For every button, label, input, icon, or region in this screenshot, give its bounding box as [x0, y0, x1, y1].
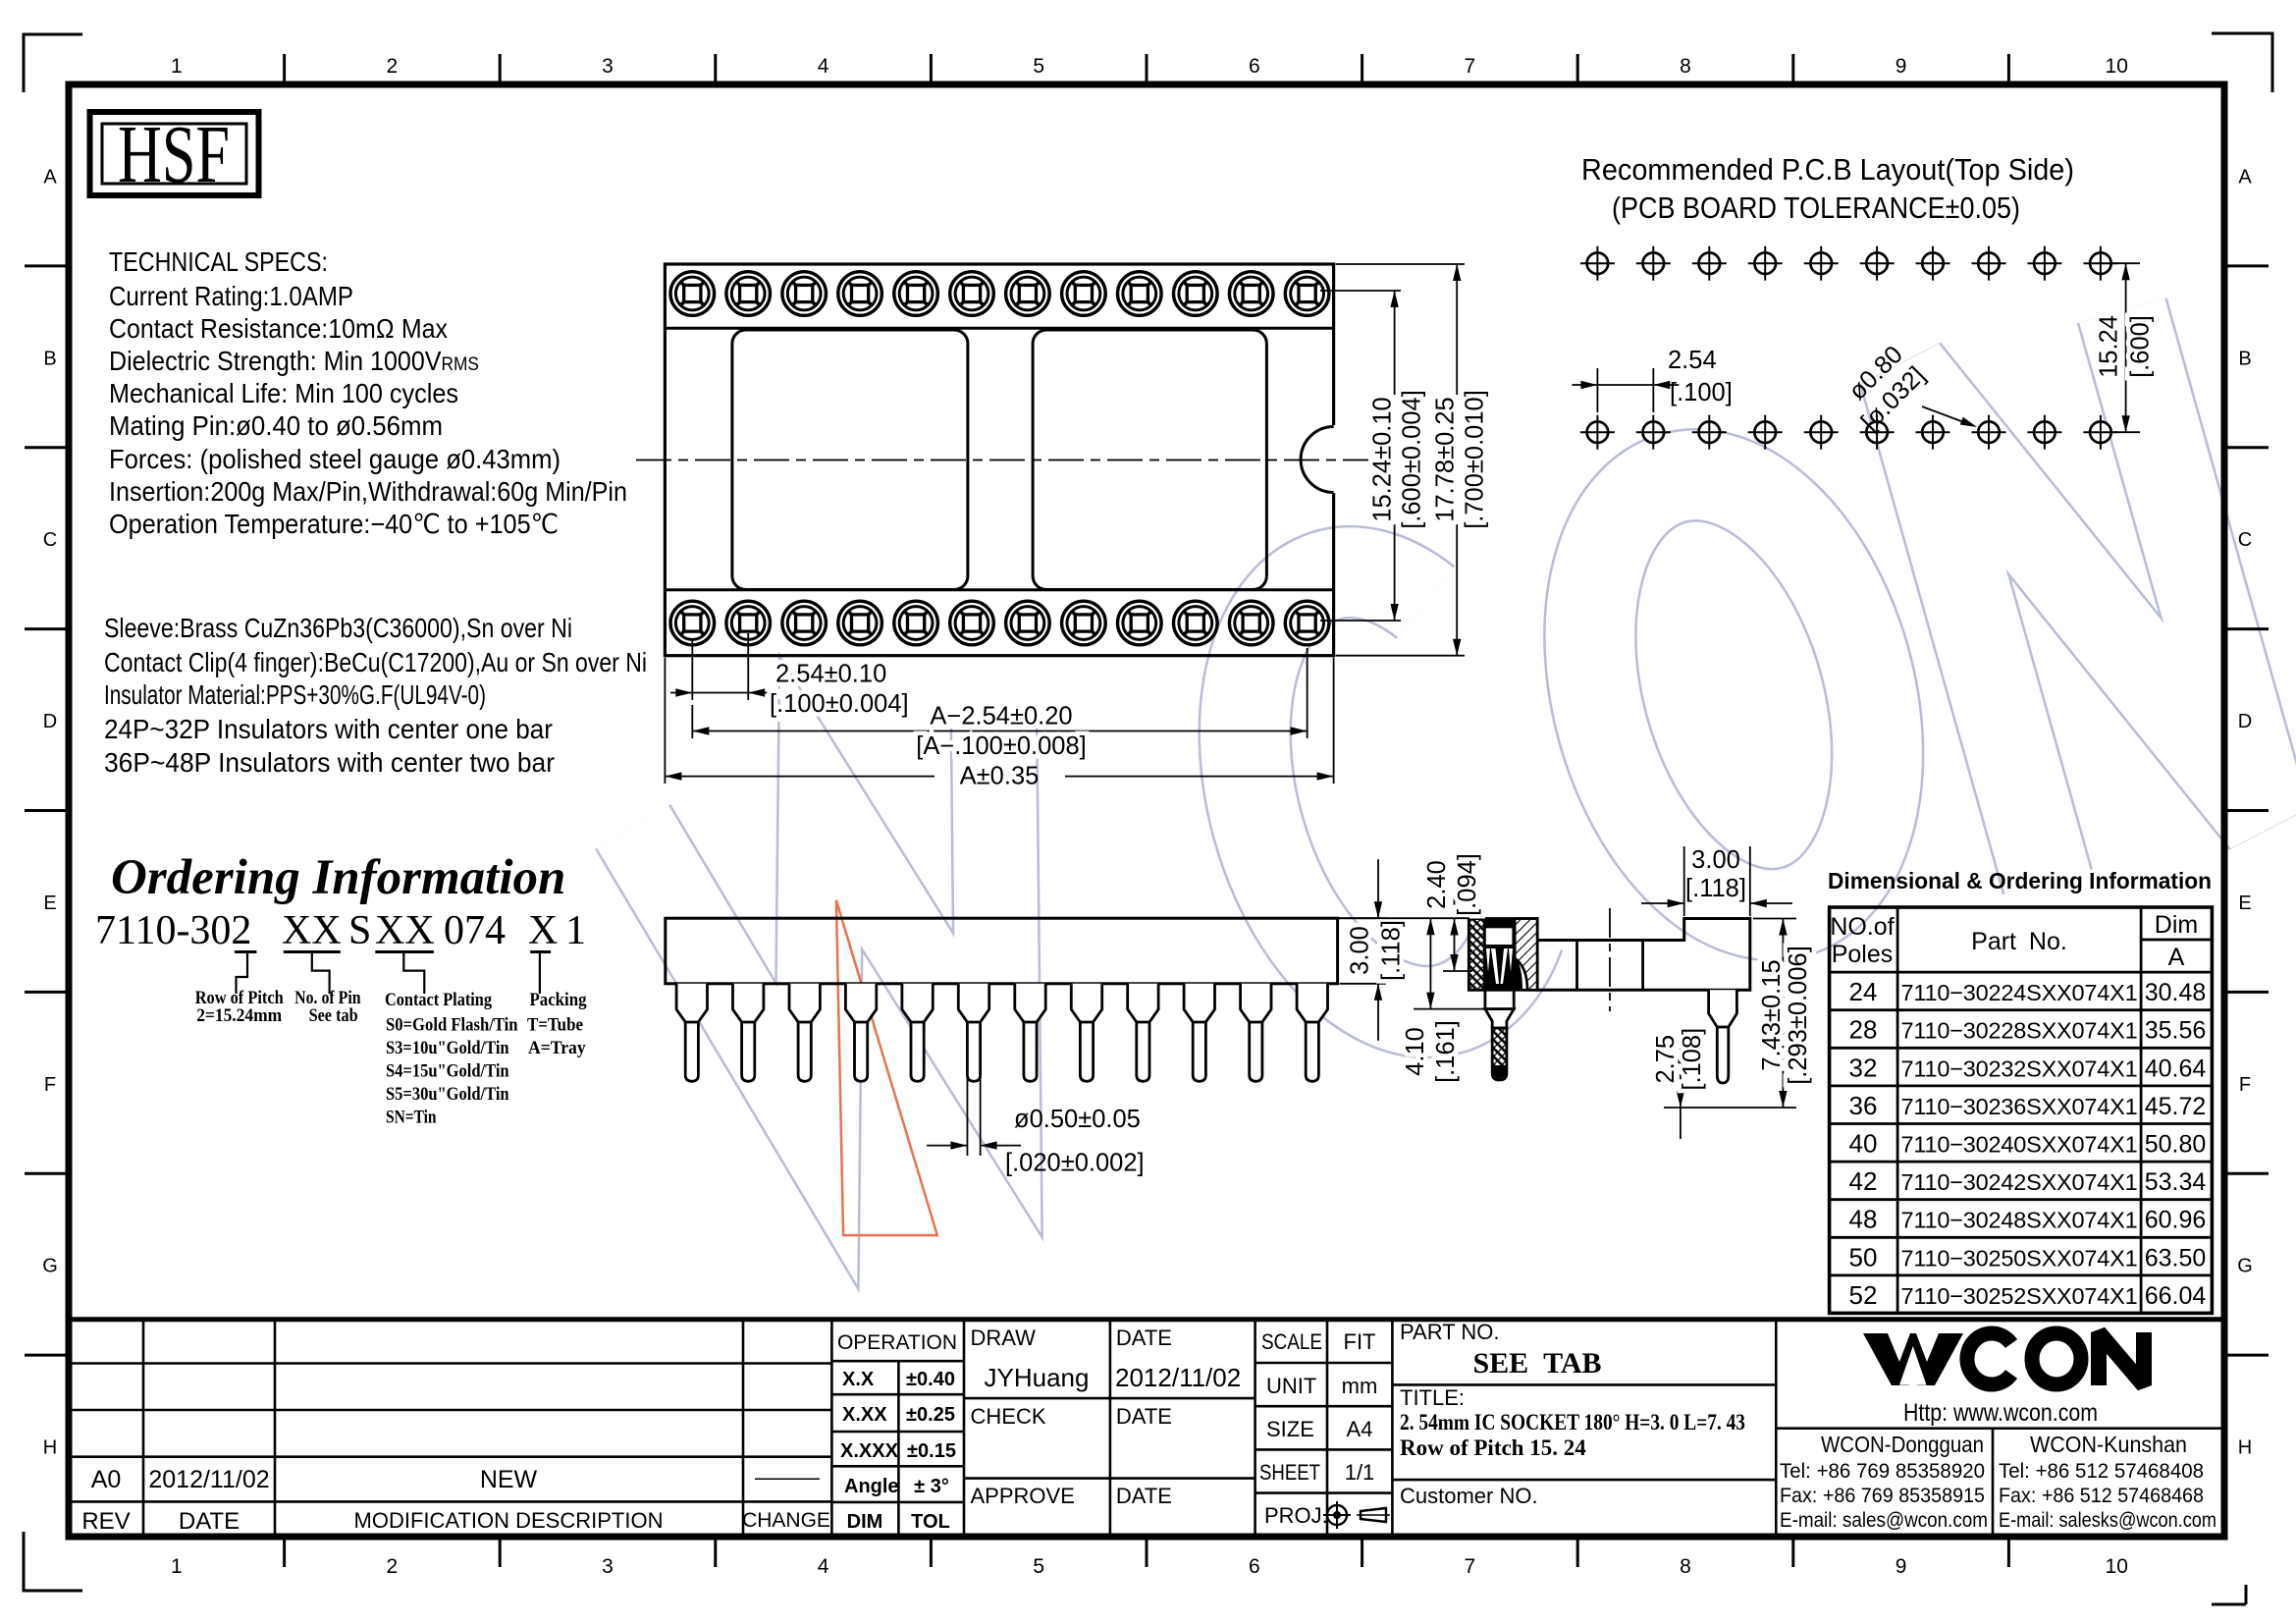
svg-text:8: 8 — [1680, 55, 1691, 78]
svg-text:7110−30242SXX074X1: 7110−30242SXX074X1 — [1901, 1169, 2138, 1195]
svg-text:7: 7 — [1465, 55, 1476, 78]
svg-text:DRAW: DRAW — [971, 1326, 1037, 1350]
svg-text:[.700±0.010]: [.700±0.010] — [1461, 390, 1488, 529]
svg-text:Recommended P.C.B Layout(Top S: Recommended P.C.B Layout(Top Side) — [1581, 153, 2074, 187]
svg-text:F: F — [44, 1074, 56, 1096]
svg-text:[.100±0.004]: [.100±0.004] — [770, 690, 909, 718]
svg-text:CHANGE: CHANGE — [742, 1509, 830, 1532]
svg-text:REV: REV — [81, 1508, 130, 1535]
svg-text:±0.40: ±0.40 — [906, 1369, 955, 1390]
svg-text:48: 48 — [1849, 1205, 1878, 1234]
svg-text:UNIT: UNIT — [1266, 1374, 1316, 1398]
svg-text:S4=15u"Gold/Tin: S4=15u"Gold/Tin — [386, 1061, 509, 1082]
svg-text:Fax: +86 769 85358915: Fax: +86 769 85358915 — [1780, 1484, 1985, 1507]
svg-text:Sleeve:Brass CuZn36Pb3(C36000): Sleeve:Brass CuZn36Pb3(C36000),Sn over N… — [104, 613, 572, 643]
svg-text:Dim: Dim — [2155, 911, 2198, 939]
svg-text:Angle: Angle — [844, 1476, 899, 1497]
svg-text:2. 54mm IC SOCKET 180° H=3. 0: 2. 54mm IC SOCKET 180° H=3. 0 L=7. 43 — [1400, 1410, 1745, 1435]
svg-text:Contact Plating: Contact Plating — [385, 990, 492, 1010]
svg-text:S0=Gold Flash/Tin: S0=Gold Flash/Tin — [386, 1015, 518, 1036]
svg-text:3.00: 3.00 — [1691, 846, 1740, 874]
svg-text:6: 6 — [1249, 1555, 1260, 1578]
svg-text:9: 9 — [1896, 55, 1907, 78]
svg-text:Dielectric Strength: Min 1000V: Dielectric Strength: Min 1000VRMS — [109, 346, 479, 376]
svg-text:C: C — [2238, 529, 2252, 551]
svg-text:28: 28 — [1849, 1015, 1878, 1045]
svg-text:SCALE: SCALE — [1261, 1329, 1322, 1354]
svg-text:HSF: HSF — [118, 108, 230, 199]
svg-text:2: 2 — [387, 1555, 399, 1578]
svg-text:7: 7 — [1465, 1555, 1476, 1578]
svg-text:F: F — [2239, 1074, 2251, 1096]
svg-text:± 3°: ± 3° — [914, 1476, 949, 1497]
svg-text:4.10: 4.10 — [1402, 1027, 1429, 1076]
svg-text:3: 3 — [602, 1555, 614, 1578]
svg-text:63.50: 63.50 — [2145, 1244, 2207, 1272]
svg-text:See tab: See tab — [309, 1005, 358, 1026]
svg-text:H: H — [43, 1437, 57, 1459]
svg-text:PROJ.: PROJ. — [1264, 1503, 1328, 1528]
svg-text:[.118]: [.118] — [1685, 875, 1746, 902]
svg-text:X.XX: X.XX — [842, 1404, 887, 1426]
svg-text:4: 4 — [818, 55, 829, 78]
svg-text:Part No.: Part No. — [1971, 928, 2067, 955]
svg-text:T=Tube: T=Tube — [527, 1015, 583, 1036]
svg-text:APPROVE: APPROVE — [971, 1484, 1075, 1508]
svg-text:Tel: +86 512 57468408: Tel: +86 512 57468408 — [1999, 1459, 2204, 1483]
svg-text:Fax: +86 512 57468468: Fax: +86 512 57468468 — [1999, 1484, 2204, 1507]
svg-text:Packing: Packing — [530, 990, 587, 1010]
svg-text:mm: mm — [1342, 1374, 1378, 1398]
svg-text:OPERATION: OPERATION — [837, 1331, 957, 1354]
svg-text:40.64: 40.64 — [2145, 1055, 2207, 1082]
svg-text:Forces: (polished steel gauge: Forces: (polished steel gauge ø0.43mm) — [109, 444, 561, 474]
svg-text:2.54: 2.54 — [1668, 347, 1717, 374]
svg-text:[.094]: [.094] — [1454, 853, 1481, 916]
svg-text:7110−30252SXX074X1: 7110−30252SXX074X1 — [1901, 1283, 2138, 1309]
svg-text:[.600±0.004]: [.600±0.004] — [1398, 390, 1425, 529]
svg-text:35.56: 35.56 — [2145, 1017, 2207, 1045]
svg-text:Operation Temperature:−40℃ to: Operation Temperature:−40℃ to +105℃ — [109, 509, 559, 539]
svg-text:E-mail: salesks@wcon.com: E-mail: salesks@wcon.com — [1999, 1508, 2216, 1532]
svg-text:2=15.24mm: 2=15.24mm — [196, 1005, 282, 1026]
svg-text:X.XXX: X.XXX — [840, 1440, 899, 1462]
svg-text:E-mail: sales@wcon.com: E-mail: sales@wcon.com — [1780, 1508, 1988, 1532]
svg-text:B: B — [2238, 348, 2251, 369]
svg-text:Mechanical Life: Min 100 cycle: Mechanical Life: Min 100 cycles — [109, 378, 458, 408]
svg-text:WCON-Dongguan: WCON-Dongguan — [1821, 1432, 1984, 1457]
svg-text:A±0.35: A±0.35 — [960, 763, 1040, 790]
svg-text:D: D — [43, 711, 57, 732]
svg-text:E: E — [43, 893, 56, 914]
svg-text:9: 9 — [1896, 1555, 1907, 1578]
svg-text:36P~48P Insulators with center: 36P~48P Insulators with center two bar — [104, 747, 555, 778]
svg-text:5: 5 — [1033, 55, 1044, 78]
svg-text:7110−30224SXX074X1: 7110−30224SXX074X1 — [1901, 980, 2138, 1005]
svg-text:2.40: 2.40 — [1423, 860, 1451, 909]
svg-text:50.80: 50.80 — [2145, 1131, 2207, 1159]
svg-text:8: 8 — [1680, 1555, 1691, 1578]
svg-text:[.161]: [.161] — [1432, 1020, 1460, 1083]
svg-text:TOL: TOL — [911, 1511, 950, 1533]
svg-text:6: 6 — [1249, 55, 1260, 78]
svg-text:66.04: 66.04 — [2145, 1282, 2207, 1310]
svg-text:4: 4 — [818, 1555, 829, 1578]
svg-text:2: 2 — [387, 55, 399, 78]
svg-text:50: 50 — [1849, 1242, 1878, 1272]
svg-text:52: 52 — [1849, 1280, 1878, 1310]
svg-text:7110−30248SXX074X1: 7110−30248SXX074X1 — [1901, 1208, 2138, 1233]
svg-text:H: H — [2238, 1437, 2252, 1459]
svg-text:1: 1 — [171, 1555, 183, 1578]
svg-text:Customer NO.: Customer NO. — [1400, 1484, 1538, 1508]
svg-text:36: 36 — [1849, 1091, 1878, 1120]
svg-text:S3=10u"Gold/Tin: S3=10u"Gold/Tin — [386, 1038, 509, 1058]
svg-text:Dimensional & Ordering Informa: Dimensional & Ordering Information — [1828, 868, 2212, 893]
svg-text:Row of Pitch 15. 24: Row of Pitch 15. 24 — [1400, 1435, 1586, 1460]
svg-text:SEE TAB: SEE TAB — [1472, 1347, 1601, 1380]
svg-text:[.600]: [.600] — [2126, 315, 2154, 378]
svg-text:ø0.50±0.05: ø0.50±0.05 — [1014, 1106, 1141, 1133]
svg-text:Insertion:200g Max/Pin,Withdra: Insertion:200g Max/Pin,Withdrawal:60g Mi… — [109, 476, 627, 507]
svg-text:PART NO.: PART NO. — [1400, 1320, 1499, 1344]
svg-text:7110−30240SXX074X1: 7110−30240SXX074X1 — [1901, 1132, 2138, 1158]
svg-text:X.X: X.X — [842, 1369, 875, 1390]
svg-text:10: 10 — [2106, 55, 2128, 78]
svg-text:[.100]: [.100] — [1670, 379, 1733, 406]
svg-text:2012/11/02: 2012/11/02 — [148, 1466, 269, 1493]
svg-text:B: B — [43, 348, 56, 369]
svg-text:60.96: 60.96 — [2145, 1207, 2207, 1234]
svg-text:30.48: 30.48 — [2145, 979, 2207, 1006]
svg-text:NO.of: NO.of — [1830, 913, 1894, 941]
svg-text:[.108]: [.108] — [1679, 1028, 1706, 1091]
svg-text:7.43±0.15: 7.43±0.15 — [1758, 959, 1786, 1070]
svg-text:SIZE: SIZE — [1266, 1417, 1314, 1441]
svg-text:[.293±0.006]: [.293±0.006] — [1785, 946, 1812, 1085]
svg-text:G: G — [2237, 1256, 2253, 1277]
svg-text:A: A — [43, 166, 57, 188]
svg-text:A−2.54±0.20: A−2.54±0.20 — [930, 703, 1072, 731]
svg-text:C: C — [43, 529, 57, 551]
svg-text:1/1: 1/1 — [1345, 1460, 1375, 1485]
svg-text:2012/11/02: 2012/11/02 — [1115, 1363, 1241, 1392]
svg-text:24: 24 — [1849, 977, 1878, 1006]
svg-text:Contact Resistance:10mΩ Max: Contact Resistance:10mΩ Max — [109, 313, 448, 344]
svg-text:JYHuang: JYHuang — [985, 1363, 1090, 1392]
svg-text:15.24±0.10: 15.24±0.10 — [1368, 397, 1396, 521]
svg-text:24P~32P Insulators with center: 24P~32P Insulators with center one bar — [104, 714, 553, 744]
svg-text:40: 40 — [1849, 1129, 1878, 1159]
svg-text:DATE: DATE — [1116, 1484, 1172, 1508]
svg-text:S5=30u"Gold/Tin: S5=30u"Gold/Tin — [386, 1084, 509, 1105]
svg-text:5: 5 — [1033, 1555, 1044, 1578]
svg-text:TECHNICAL SPECS:: TECHNICAL SPECS: — [109, 246, 328, 277]
svg-text:7110−30228SXX074X1: 7110−30228SXX074X1 — [1901, 1018, 2138, 1044]
svg-text:NEW: NEW — [480, 1466, 538, 1493]
svg-text:TITLE:: TITLE: — [1400, 1385, 1465, 1410]
svg-text:2.75: 2.75 — [1652, 1035, 1680, 1084]
svg-text:A4: A4 — [1347, 1417, 1373, 1441]
svg-text:Tel: +86 769 85358920: Tel: +86 769 85358920 — [1780, 1459, 1985, 1483]
svg-text:7110−30250SXX074X1: 7110−30250SXX074X1 — [1901, 1245, 2138, 1271]
svg-text:10: 10 — [2106, 1555, 2128, 1578]
svg-text:1: 1 — [171, 55, 183, 78]
svg-text:Http: www.wcon.com: Http: www.wcon.com — [1903, 1399, 2098, 1427]
svg-text:FIT: FIT — [1344, 1329, 1376, 1354]
svg-text:CHECK: CHECK — [971, 1404, 1046, 1429]
svg-text:A0: A0 — [91, 1466, 122, 1493]
svg-text:53.34: 53.34 — [2145, 1168, 2207, 1196]
svg-text:[.118]: [.118] — [1377, 920, 1405, 981]
svg-text:2.54±0.10: 2.54±0.10 — [775, 661, 886, 688]
svg-text:A: A — [2238, 166, 2252, 188]
svg-text:Mating Pin:ø0.40 to ø0.56mm: Mating Pin:ø0.40 to ø0.56mm — [109, 410, 443, 441]
svg-text:———: ——— — [755, 1465, 820, 1489]
svg-text:G: G — [42, 1256, 58, 1277]
svg-text:7110−30232SXX074X1: 7110−30232SXX074X1 — [1901, 1056, 2138, 1081]
svg-text:45.72: 45.72 — [2145, 1093, 2207, 1120]
svg-text:(PCB BOARD TOLERANCE±0.05): (PCB BOARD TOLERANCE±0.05) — [1612, 191, 2020, 225]
svg-text:SN=Tin: SN=Tin — [386, 1108, 437, 1128]
svg-text:[.020±0.002]: [.020±0.002] — [1005, 1150, 1145, 1177]
svg-text:SHEET: SHEET — [1259, 1460, 1320, 1485]
svg-text:3.00: 3.00 — [1346, 926, 1373, 975]
svg-text:E: E — [2238, 893, 2251, 914]
svg-text:±0.15: ±0.15 — [907, 1440, 956, 1462]
svg-text:42: 42 — [1849, 1166, 1878, 1196]
svg-text:DATE: DATE — [179, 1508, 240, 1535]
svg-text:DATE: DATE — [1116, 1326, 1172, 1350]
svg-text:17.78±0.25: 17.78±0.25 — [1431, 397, 1459, 521]
svg-text:7110−30236SXX074X1: 7110−30236SXX074X1 — [1901, 1094, 2138, 1119]
svg-text:DATE: DATE — [1116, 1404, 1172, 1429]
svg-text:DIM: DIM — [847, 1511, 883, 1533]
svg-text:15.24: 15.24 — [2095, 315, 2122, 378]
svg-text:Current Rating:1.0AMP: Current Rating:1.0AMP — [109, 281, 353, 311]
svg-text:MODIFICATION DESCRIPTION: MODIFICATION DESCRIPTION — [354, 1508, 664, 1533]
svg-text:D: D — [2238, 711, 2252, 732]
svg-text:Poles: Poles — [1832, 941, 1894, 968]
svg-text:[A−.100±0.008]: [A−.100±0.008] — [916, 732, 1087, 760]
svg-text:Ordering Information: Ordering Information — [111, 850, 565, 905]
svg-text:Contact Clip(4 finger):BeCu(C1: Contact Clip(4 finger):BeCu(C17200),Au o… — [104, 647, 647, 677]
svg-text:WCON-Kunshan: WCON-Kunshan — [2030, 1432, 2187, 1457]
svg-text:A: A — [2168, 944, 2185, 971]
svg-text:3: 3 — [602, 55, 614, 78]
svg-text:32: 32 — [1849, 1053, 1878, 1082]
svg-text:Insulator Material:PPS+30%G.F(: Insulator Material:PPS+30%G.F(UL94V-0) — [104, 679, 486, 710]
svg-text:±0.25: ±0.25 — [906, 1404, 955, 1426]
svg-text:A=Tray: A=Tray — [528, 1038, 586, 1058]
